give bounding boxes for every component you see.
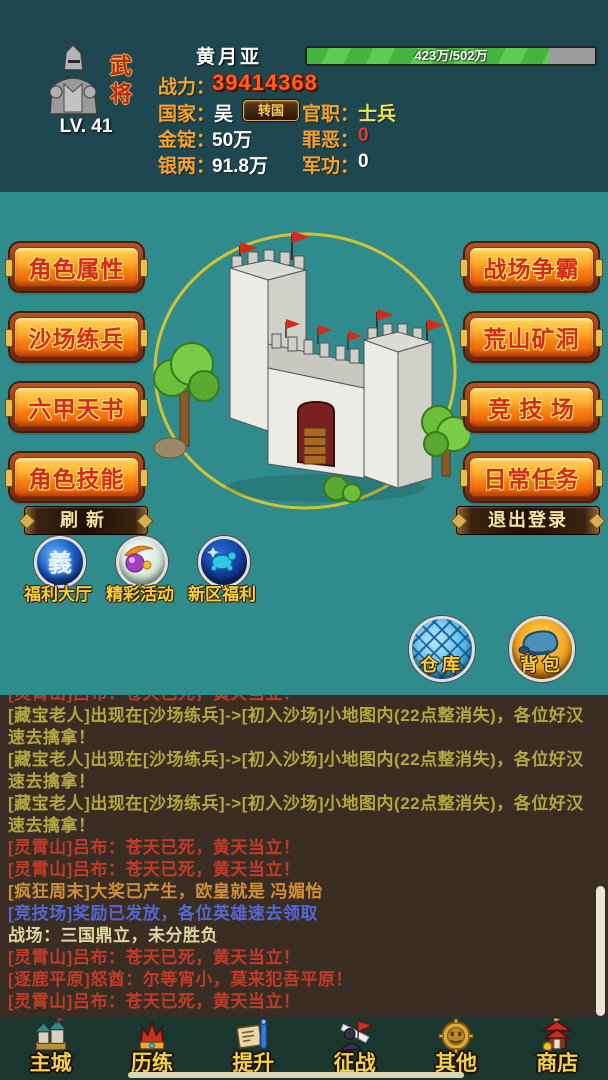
sin-label: 罪恶：: [302, 125, 359, 152]
power-value: 39414368: [212, 70, 318, 96]
menu-button-battlefield-training[interactable]: 沙场练兵: [10, 313, 143, 361]
rank-value: 士兵: [358, 99, 396, 126]
castle-illustration: [140, 226, 470, 516]
logout-button[interactable]: 退出登录: [456, 506, 600, 535]
rank-label: 官职：: [302, 99, 359, 126]
nav-item-others[interactable]: 其他: [405, 1017, 506, 1080]
new-zone-label: 新区福利: [176, 580, 268, 605]
chat-message: [疯狂周末]大奖已产生，欧皇就是 冯媚怡: [8, 881, 600, 903]
chat-message: [灵霄山]吕布：苍天已死，黄天当立！: [8, 991, 600, 1013]
warehouse-button[interactable]: 仓库: [409, 616, 475, 682]
silver-value: 91.8万: [212, 151, 268, 178]
nav-item-training[interactable]: 历练: [101, 1017, 202, 1080]
new-zone-orb-icon: [201, 539, 241, 579]
transfer-country-button[interactable]: 转国: [243, 100, 299, 121]
player-avatar[interactable]: [44, 40, 102, 118]
menu-button-liujia-book[interactable]: 六甲天书: [10, 383, 143, 431]
menu-button-barren-mine[interactable]: 荒山矿洞: [465, 313, 598, 361]
player-info-panel: 武将 LV. 41 黄月亚 423万/502万 战力： 39414368 国家：…: [0, 0, 608, 192]
backpack-label: 背包: [512, 651, 572, 677]
xp-bar: 423万/502万: [305, 46, 597, 66]
xp-text: 423万/502万: [307, 48, 595, 64]
menu-button-character-skills[interactable]: 角色技能: [10, 453, 143, 501]
menu-button-label: 角色技能: [29, 460, 125, 494]
chat-message: [藏宝老人]出现在[沙场练兵]->[初入沙场]小地图内(22点整消失)，各位好汉…: [8, 793, 600, 837]
warehouse-label: 仓库: [412, 651, 472, 677]
chat-message: 战场：三国鼎立，未分胜负: [8, 925, 600, 947]
menu-button-label: 日常任务: [484, 460, 580, 494]
silver-label: 银两：: [158, 151, 215, 178]
menu-button-label: 六甲天书: [29, 390, 125, 424]
chat-log: [灵霄山]吕布：苍天已死，黄天当立！ [藏宝老人]出现在[沙场练兵]->[初入沙…: [0, 695, 608, 1017]
menu-button-character-attributes[interactable]: 角色属性: [10, 243, 143, 291]
knight-avatar-icon: [44, 40, 102, 118]
gold-value: 50万: [212, 125, 252, 152]
menu-button-label: 沙场练兵: [29, 320, 125, 354]
power-label: 战力：: [158, 72, 215, 99]
refresh-button[interactable]: 刷新: [24, 506, 148, 535]
country-label: 国家：: [158, 99, 215, 126]
nav-item-battle[interactable]: 征战: [304, 1017, 405, 1080]
chat-message: [灵霄山]吕布：苍天已死，黄天当立！: [8, 837, 600, 859]
nav-item-shop[interactable]: 商店: [507, 1017, 608, 1080]
player-name: 黄月亚: [196, 42, 262, 69]
bottom-nav-bar: 主城 历练 提升: [0, 1017, 608, 1080]
home-indicator-bar: [128, 1072, 464, 1078]
nav-label: 商店: [507, 1047, 608, 1077]
chat-message: [灵霄山]吕布：苍天已死，黄天当立！: [8, 859, 600, 881]
country-value: 吴: [214, 99, 233, 126]
player-level: LV. 41: [40, 116, 132, 138]
welfare-hall-orb-icon: 義: [37, 543, 83, 578]
menu-button-label: 竞 技 场: [488, 390, 575, 424]
activities-label: 精彩活动: [94, 580, 186, 605]
merit-value: 0: [358, 151, 369, 173]
backpack-button[interactable]: 背包: [509, 616, 575, 682]
sin-value: 0: [358, 125, 369, 147]
merit-label: 军功：: [302, 151, 359, 178]
chat-scrollbar[interactable]: [596, 886, 605, 1016]
chat-message: [逐鹿平原]怒酋：尔等宵小，莫来犯吾平原！: [8, 969, 600, 991]
class-badge: 武将: [103, 54, 135, 110]
gold-label: 金锭：: [158, 125, 215, 152]
activities-swirl-orb-icon: [119, 539, 159, 579]
menu-button-battlefield-hegemony[interactable]: 战场争霸: [465, 243, 598, 291]
welfare-hall-label: 福利大厅: [12, 580, 104, 605]
chat-message: [灵霄山]吕布：苍天已死，黄天当立！: [8, 947, 600, 969]
chat-message: [藏宝老人]出现在[沙场练兵]->[初入沙场]小地图内(22点整消失)，各位好汉…: [8, 705, 600, 749]
chat-message: [藏宝老人]出现在[沙场练兵]->[初入沙场]小地图内(22点整消失)，各位好汉…: [8, 749, 600, 793]
menu-button-arena[interactable]: 竞 技 场: [465, 383, 598, 431]
nav-item-upgrade[interactable]: 提升: [203, 1017, 304, 1080]
chat-messages: [灵霄山]吕布：苍天已死，黄天当立！ [藏宝老人]出现在[沙场练兵]->[初入沙…: [0, 695, 608, 1013]
menu-button-daily-tasks[interactable]: 日常任务: [465, 453, 598, 501]
nav-label: 主城: [0, 1047, 101, 1077]
nav-item-main-city[interactable]: 主城: [0, 1017, 101, 1080]
menu-button-label: 战场争霸: [484, 250, 580, 284]
chat-message: [灵霄山]吕布：苍天已死，黄天当立！: [8, 695, 600, 705]
menu-button-label: 荒山矿洞: [484, 320, 580, 354]
game-main-screen: 武将 LV. 41 黄月亚 423万/502万 战力： 39414368 国家：…: [0, 0, 608, 1080]
chat-message: [竞技场]奖励已发放，各位英雄速去领取: [8, 903, 600, 925]
menu-button-label: 角色属性: [29, 250, 125, 284]
